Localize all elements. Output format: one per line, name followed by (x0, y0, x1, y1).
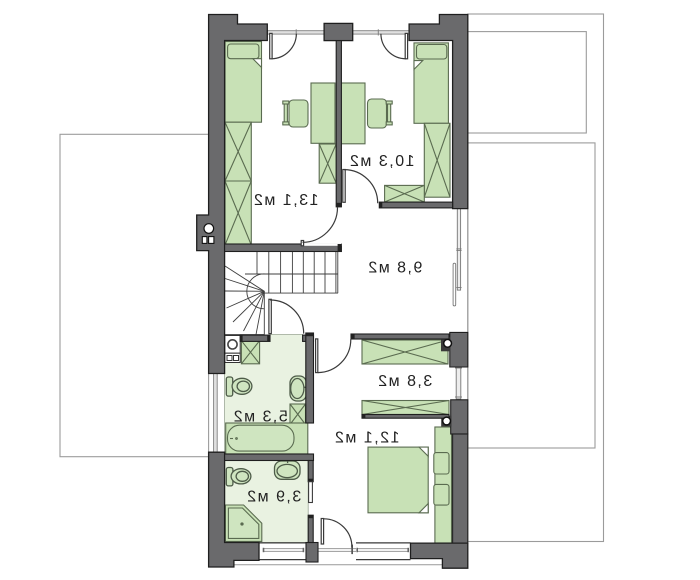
svg-text:13,1 м2: 13,1 м2 (253, 192, 319, 209)
svg-text:5,3 м2: 5,3 м2 (232, 409, 288, 426)
svg-text:3,9 м2: 3,9 м2 (246, 489, 302, 506)
svg-text:10,3 м2: 10,3 м2 (349, 153, 415, 170)
svg-text:9,8 м2: 9,8 м2 (367, 260, 423, 277)
svg-text:12,1 м2: 12,1 м2 (334, 430, 400, 447)
svg-text:3,8 м2: 3,8 м2 (377, 373, 433, 390)
